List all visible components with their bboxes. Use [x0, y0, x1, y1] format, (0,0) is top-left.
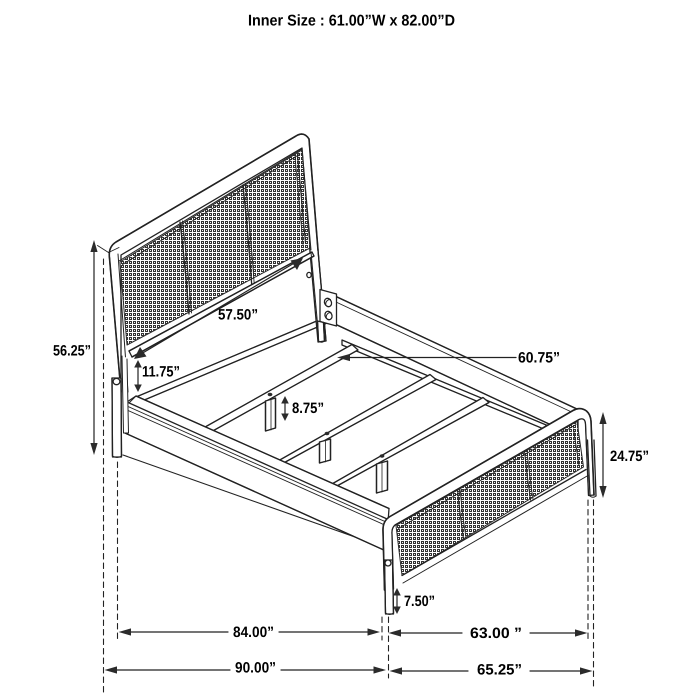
svg-text:84.00”: 84.00”: [233, 624, 274, 641]
svg-text:7.50”: 7.50”: [404, 593, 435, 610]
svg-text:63.00 ”: 63.00 ”: [470, 625, 522, 642]
svg-text:56.25”: 56.25”: [53, 343, 91, 360]
svg-text:11.75”: 11.75”: [142, 364, 180, 381]
svg-text:90.00”: 90.00”: [235, 660, 276, 677]
svg-text:24.75”: 24.75”: [610, 448, 649, 465]
svg-text:65.25”: 65.25”: [477, 662, 522, 679]
svg-text:57.50”: 57.50”: [218, 307, 258, 324]
svg-text:60.75”: 60.75”: [518, 350, 560, 367]
svg-text:8.75”: 8.75”: [292, 400, 324, 417]
svg-text:Inner Size : 61.00”W x 82.00”D: Inner Size : 61.00”W x 82.00”D: [248, 13, 455, 30]
